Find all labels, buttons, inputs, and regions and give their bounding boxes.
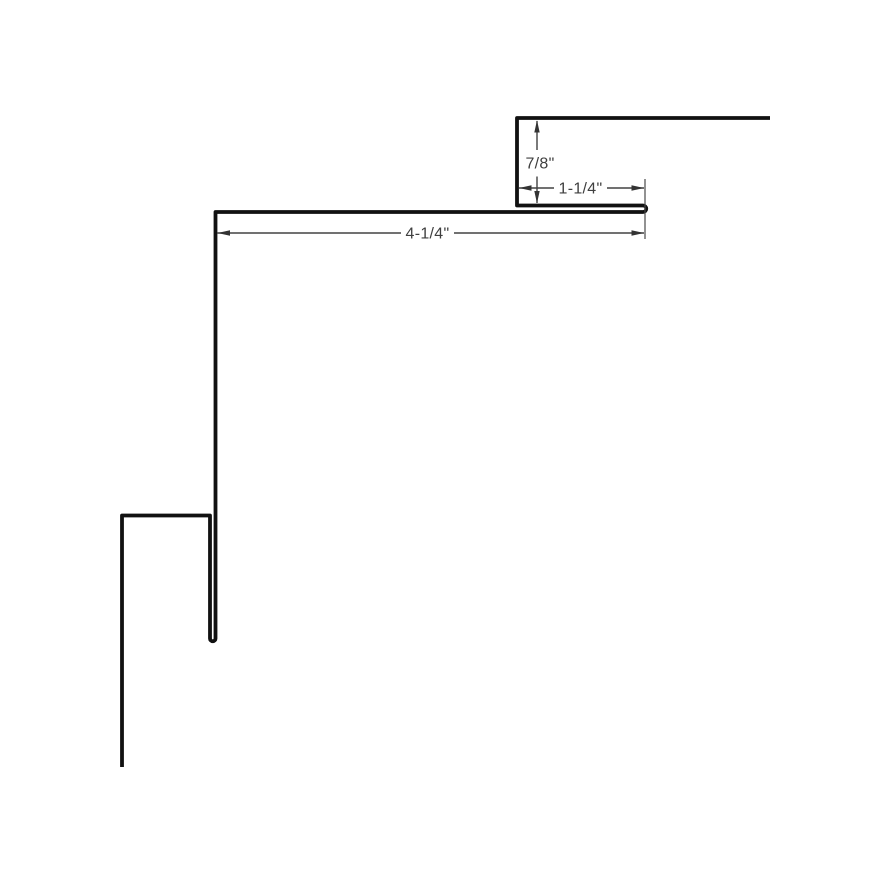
arrowhead-up (534, 120, 539, 132)
arrowhead-down (534, 191, 539, 203)
dimension-label-vertical-leg: 7/8" (525, 156, 554, 173)
profile-drawing-svg: 7/8" 1-1/4" 4-1/4" (0, 0, 889, 885)
dimension-label-top-flange: 4-1/4" (406, 226, 450, 243)
technical-drawing-canvas: 7/8" 1-1/4" 4-1/4" (0, 0, 889, 885)
arrowhead-right (632, 230, 645, 235)
dimension-top-flange: 4-1/4" (218, 226, 645, 243)
arrowhead-left (218, 230, 231, 235)
arrowhead-left (519, 185, 532, 190)
profile-outline (122, 118, 770, 767)
dimension-vertical-leg: 7/8" (525, 120, 554, 203)
arrowhead-right (632, 185, 645, 190)
dimension-label-hem-ledge: 1-1/4" (559, 181, 603, 198)
